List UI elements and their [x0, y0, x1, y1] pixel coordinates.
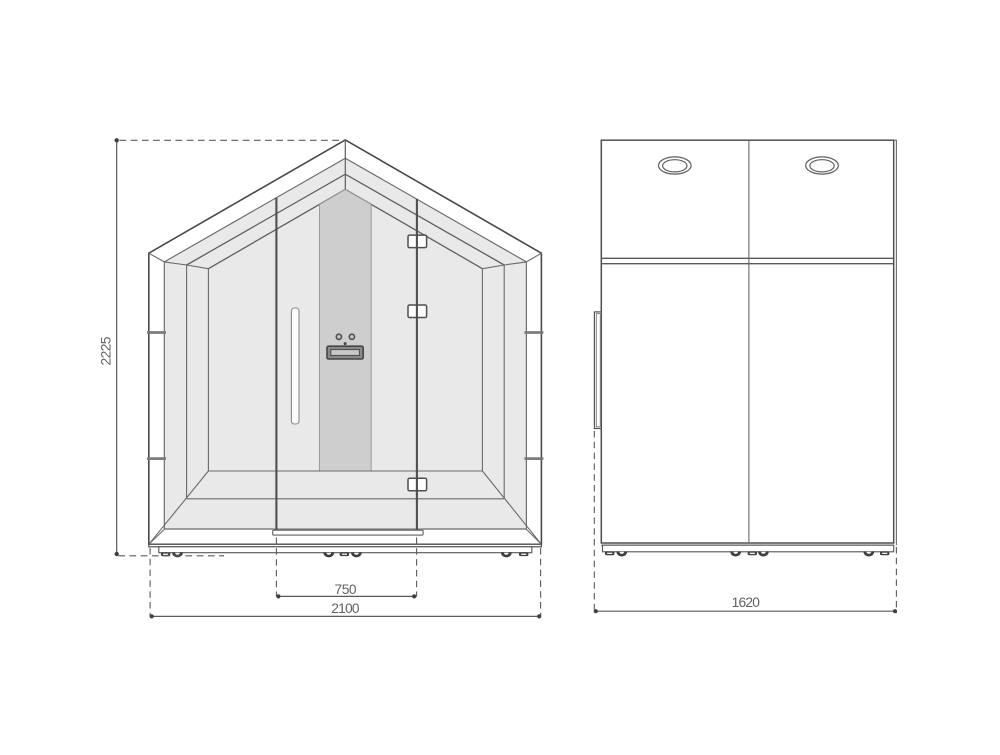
- svg-text:1620: 1620: [732, 595, 761, 610]
- svg-text:750: 750: [335, 582, 357, 597]
- svg-text:2100: 2100: [331, 601, 360, 616]
- svg-text:2225: 2225: [99, 336, 114, 365]
